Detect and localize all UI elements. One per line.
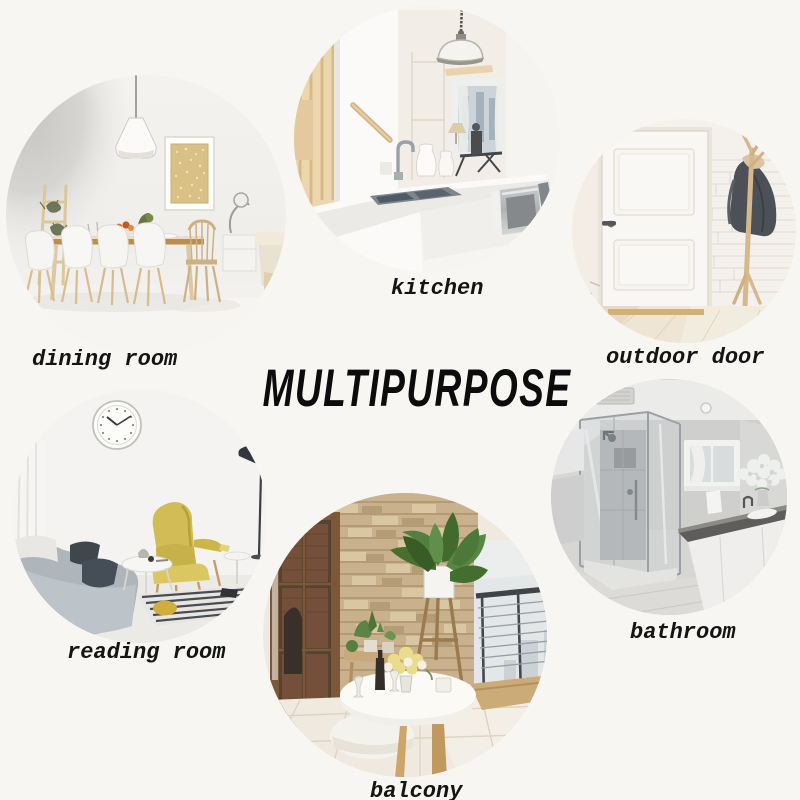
svg-text:bathroom: bathroom <box>630 620 736 645</box>
svg-text:outdoor door: outdoor door <box>606 345 764 370</box>
svg-text:balcony: balcony <box>370 779 463 800</box>
svg-text:MULTIPURPOSE: MULTIPURPOSE <box>263 358 572 417</box>
svg-text:dining room: dining room <box>32 347 178 372</box>
svg-text:kitchen: kitchen <box>391 276 483 301</box>
svg-text:reading room: reading room <box>67 640 226 665</box>
